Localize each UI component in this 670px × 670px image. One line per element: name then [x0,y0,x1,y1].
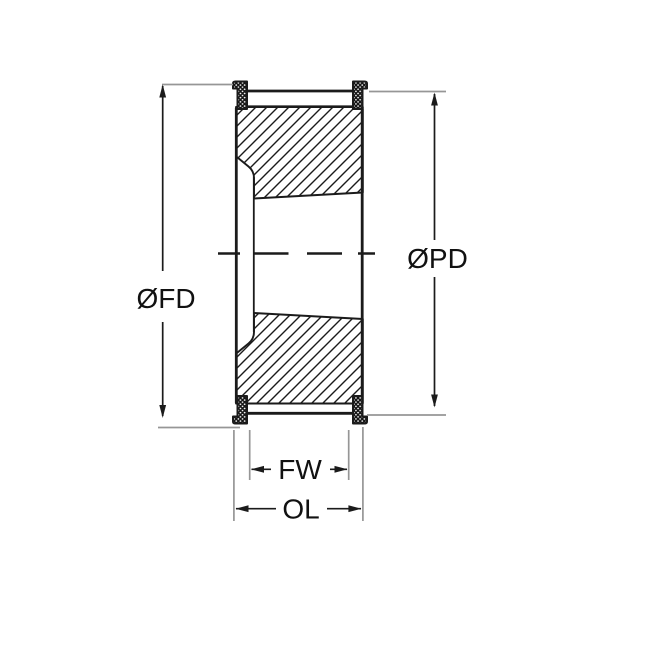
fd-label: ØFD [136,283,195,314]
lower-hub-section [236,313,363,404]
upper-hub-section [236,107,363,199]
fw-label: FW [278,454,322,485]
ol-label: OL [282,494,319,525]
pulley-technical-drawing: ØFD ØPD FW OL [0,0,670,670]
pd-label: ØPD [407,243,468,274]
